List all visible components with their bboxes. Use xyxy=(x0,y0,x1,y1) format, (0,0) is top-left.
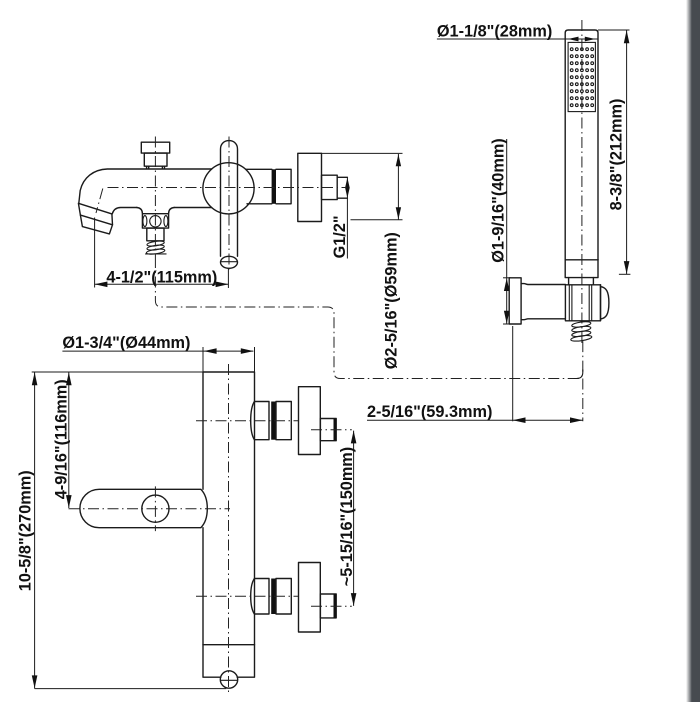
svg-text:4-9/16"(116mm): 4-9/16"(116mm) xyxy=(53,379,71,499)
svg-text:10-5/8"(270mm): 10-5/8"(270mm) xyxy=(17,470,35,591)
svg-text:8-3/8"(212mm): 8-3/8"(212mm) xyxy=(608,99,626,211)
svg-text:Ø2-5/16"(Ø59mm): Ø2-5/16"(Ø59mm) xyxy=(383,232,401,369)
svg-text:G1/2": G1/2" xyxy=(331,215,349,258)
svg-text:2-5/16"(59.3mm): 2-5/16"(59.3mm) xyxy=(367,403,492,421)
svg-text:Ø1-1/8"(28mm): Ø1-1/8"(28mm) xyxy=(437,23,552,41)
svg-text:~5-15/16"(150mm): ~5-15/16"(150mm) xyxy=(338,447,356,586)
svg-text:Ø1-9/16"(40mm): Ø1-9/16"(40mm) xyxy=(490,138,508,262)
svg-text:4-1/2"(115mm): 4-1/2"(115mm) xyxy=(106,269,217,287)
svg-text:Ø1-3/4"(Ø44mm): Ø1-3/4"(Ø44mm) xyxy=(62,334,190,352)
